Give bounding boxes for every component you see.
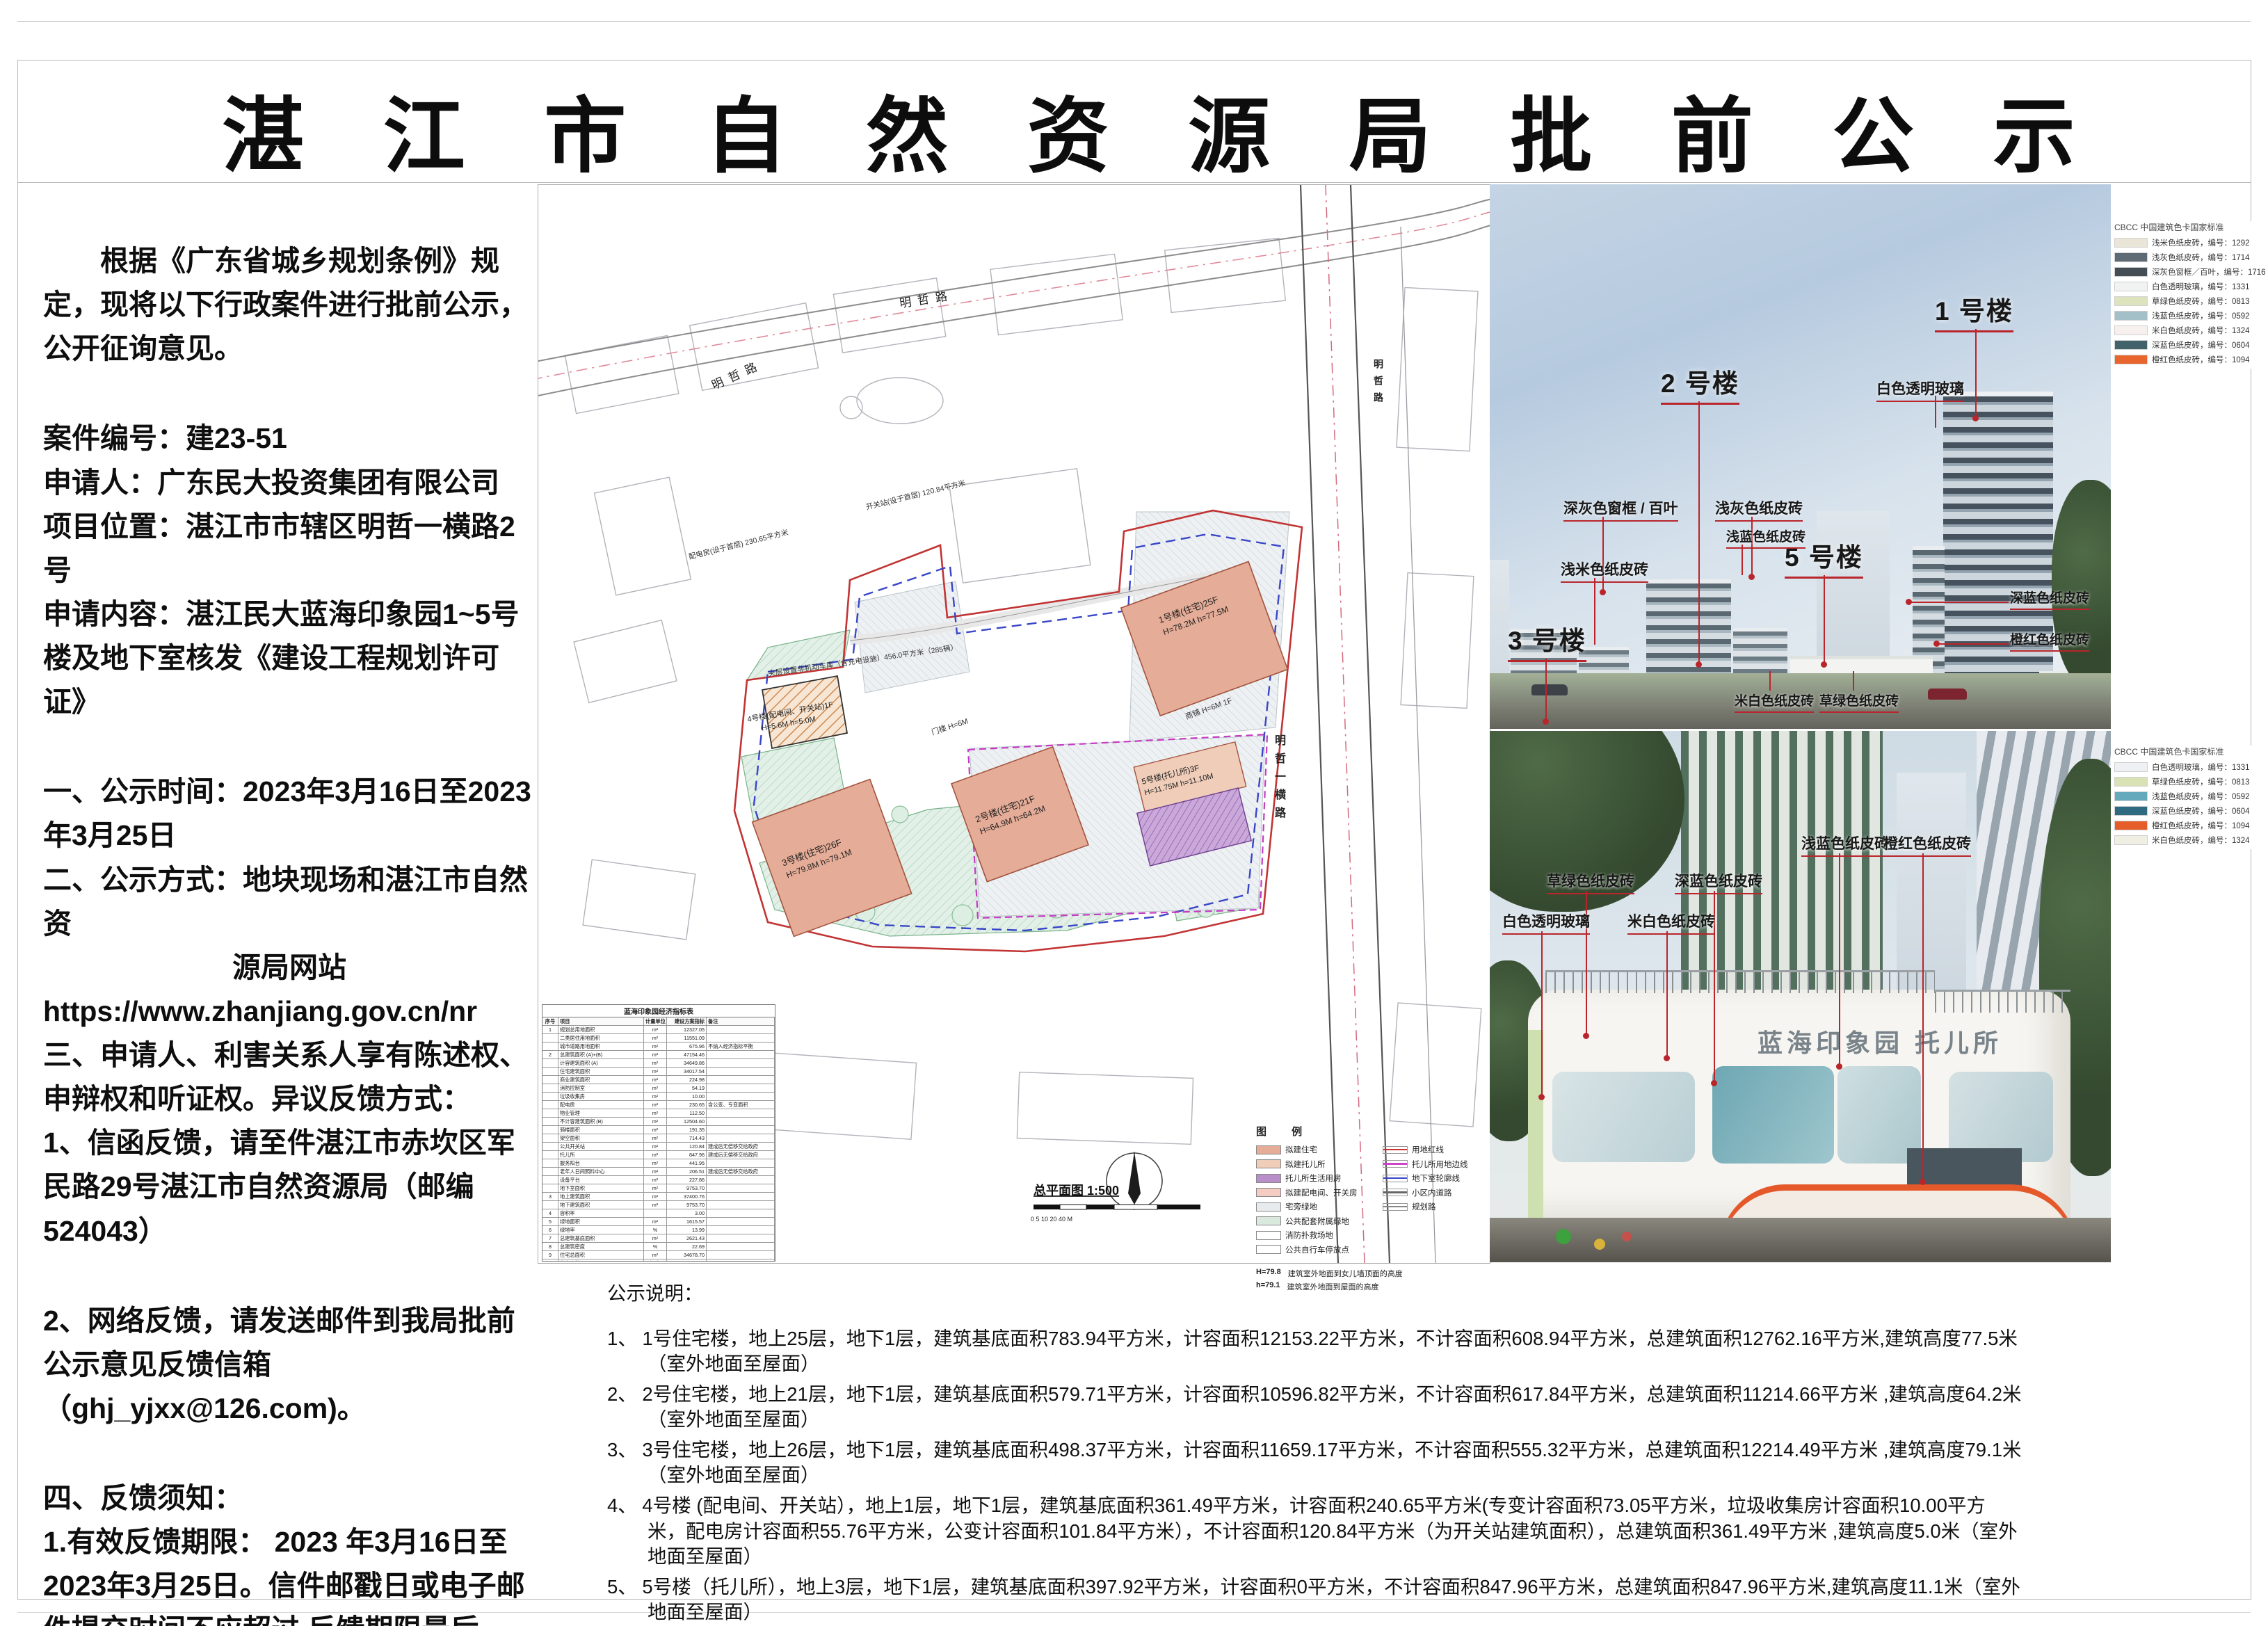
legend-swatch [1256, 1174, 1281, 1183]
legend-item: 公共自行车停放点 [1256, 1244, 1376, 1255]
economic-table-body: 1 规划总用地面积 m² 12327.05 二类居住用地面积 m² 11551.… [542, 1026, 775, 1262]
annotation-green-brick: 草绿色纸皮砖 [1819, 691, 1899, 713]
legend-item: 宅旁绿地 [1256, 1201, 1376, 1212]
notice-item: 3、 3号住宅楼，地上26层，地下1层，建筑基底面积498.37平方米，计容面积… [607, 1438, 2022, 1488]
table-row: 二类居住用地面积 m² 11551.09 [542, 1034, 775, 1043]
leader-dot [1821, 661, 1827, 668]
table-row: 配电房 m² 230.65 含公变、专变面积 [542, 1101, 775, 1109]
leader-dot [1920, 1179, 1926, 1185]
leader-line [1769, 671, 1771, 691]
mail-feedback: 1、信函反馈，请至件湛江市赤坎区军民路29号湛江市自然资源局（邮编524043） [43, 1121, 536, 1253]
power-note: 配电房(设于首层) 230.65平方米 [688, 528, 789, 561]
road-label-mingzhe-right: 明哲路 [1372, 359, 1385, 442]
legend-line-swatch [1383, 1175, 1408, 1182]
color-swatch [2114, 835, 2148, 845]
notice-item: 5、 5号楼（托儿所），地上3层，地下1层，建筑基底面积397.92平方米，计容… [607, 1575, 2022, 1625]
color-swatch [2114, 340, 2148, 350]
leader-line [1824, 575, 1825, 664]
roof-railing [1935, 990, 2070, 1013]
section-2-method-line2: 源局网站 [43, 946, 536, 990]
table-row: 住宅建筑面积 m² 34017.54 [542, 1068, 775, 1076]
notice-page: 湛 江 市 自 然 资 源 局 批 前 公 示 根据《广东省城乡规划条例》规定，… [0, 0, 2268, 1626]
annotation-white-glass: 白色透明玻璃 [1876, 378, 1964, 402]
color-swatch [2114, 762, 2148, 772]
section-2-method: 二、公示方式：地块现场和湛江市自然资 [43, 858, 536, 946]
tree [2052, 480, 2111, 689]
color-swatch [2114, 777, 2148, 787]
leader-line [1594, 578, 1595, 645]
ground [1490, 1218, 2111, 1262]
leader-line [1975, 329, 1977, 418]
section-4-notes: 四、反馈须知： [43, 1476, 536, 1520]
cbcc-legend-item: 米白色纸皮砖，编号：1324 [2114, 325, 2262, 336]
leader-dot [1538, 1094, 1545, 1100]
cbcc-legend-item: 浅灰色纸皮砖，编号：1714 [2114, 252, 2262, 263]
table-row: 5 绿地面积 m² 1615.57 [542, 1218, 775, 1226]
table-row: 10 住宅套数 户(套) 276 [542, 1259, 775, 1262]
tower-3-label: 3 号楼 [1508, 620, 1586, 662]
table-row: 2 总建筑面积 (A)+(B) m² 47154.46 [542, 1051, 775, 1059]
annotation-dark-gray-frame: 深灰色窗框 / 百叶 [1563, 497, 1678, 522]
distant-tower [1817, 511, 1890, 671]
leader-dot [1933, 641, 1940, 647]
cbcc-legend-item: 米白色纸皮砖，编号：1324 [2114, 835, 2262, 846]
tower-1-label: 1 号楼 [1935, 290, 2013, 332]
leader-dot [1748, 574, 1755, 580]
legend-swatch [1256, 1145, 1281, 1154]
table-row: 消防控制室 m² 54.19 [542, 1084, 775, 1093]
towers-rendering: 1 号楼 2 号楼 3 号楼 5 号楼 白色透明玻璃 深灰色窗框 / 百叶 浅灰… [1490, 184, 2111, 729]
cbcc-legend-item: 草绿色纸皮砖，编号：0813 [2114, 776, 2262, 787]
annotation-dark-blue-brick: 深蓝色纸皮砖 [2010, 588, 2089, 610]
table-row: 6 绿地率 % 13.99 [542, 1226, 775, 1234]
legend-item: 托儿所生活用房 [1256, 1173, 1376, 1184]
road-label-mingzhe-1: 明哲路 [709, 358, 764, 392]
case-number: 案件编号：建23-51 [43, 417, 536, 460]
road-label-yihenglu: 明哲一横路 [1270, 734, 1287, 867]
annotation-dark-blue-brick: 深蓝色纸皮砖 [1675, 870, 1762, 894]
leader-line [1698, 401, 1700, 664]
annotation-light-beige-brick: 浅米色纸皮砖 [1561, 558, 1648, 583]
color-swatch [2114, 267, 2148, 277]
plan-legend-right: 用地红线 托儿所用地边线 地下室轮廓线 [1383, 1144, 1487, 1258]
legend-line-swatch [1383, 1160, 1408, 1168]
cbcc-legend-items: 白色透明玻璃，编号：1331 草绿色纸皮砖，编号：0813 浅蓝色纸皮砖，编号：… [2114, 762, 2262, 846]
economic-table-title: 蓝海印象园经济指标表 [542, 1005, 775, 1017]
legend-item: 小区内道路 [1383, 1187, 1487, 1198]
leader-line [1938, 643, 2009, 645]
building-sign: 蓝海印象园 托儿所 [1758, 1023, 2002, 1059]
legend-swatch [1256, 1231, 1281, 1240]
leader-dot [1972, 415, 1979, 421]
annotation-white-glass: 白色透明玻璃 [1502, 910, 1590, 935]
leader-line [1541, 931, 1543, 1097]
switch-note: 开关站(设于首层) 120.84平方米 [865, 478, 967, 512]
play-ball [1594, 1239, 1605, 1250]
leader-dot [1711, 1080, 1717, 1086]
legend-item: 公共配套附属绿地 [1256, 1216, 1376, 1227]
legend-swatch [1256, 1216, 1281, 1225]
table-row: 骑楼面积 m² 191.35 [542, 1126, 775, 1134]
table-row: 老年人日间照料中心 m² 206.51 建成后无偿移交给政府 [542, 1168, 775, 1176]
section-3-rights: 三、申请人、利害关系人享有陈述权、申辩权和听证权。异议反馈方式： [43, 1033, 536, 1121]
table-row: 不计容建筑面积 (B) m² 12504.60 [542, 1118, 775, 1126]
color-swatch [2114, 296, 2148, 306]
legend-swatch [1256, 1202, 1281, 1212]
table-row: 商业建筑面积 m² 224.98 [542, 1076, 775, 1084]
leader-line [1910, 602, 2009, 603]
legend-line-swatch [1383, 1189, 1408, 1196]
distant-tower [1897, 773, 1966, 1002]
leader-dot [1600, 589, 1606, 595]
section-1-time: 一、公示时间：2023年3月16日至2023年3月25日 [43, 770, 536, 858]
notice-heading: 公示说明： [607, 1281, 2022, 1307]
scale-ticks: 0 5 10 20 40 M [1031, 1216, 1072, 1223]
notice-item: 4、 4号楼 (配电间、开关站），地上1层，地下1层，建筑基底面积361.49平… [607, 1493, 2022, 1570]
color-swatch [2114, 821, 2148, 830]
economic-table-header: 序号 项目 计量单位 建设方案指标 备注 [542, 1017, 775, 1026]
cbcc-legend-items: 浅米色纸皮砖，编号：1292 浅灰色纸皮砖，编号：1714 深灰色窗框／百叶，编… [2114, 237, 2262, 365]
annotation-off-white-brick: 米白色纸皮砖 [1627, 910, 1715, 935]
color-swatch [2114, 238, 2148, 248]
cbcc-legend-item: 浅蓝色纸皮砖，编号：0592 [2114, 310, 2262, 321]
leader-dot [1696, 661, 1702, 668]
table-row: 9 住宅总面积 m² 34678.70 [542, 1251, 775, 1259]
annotation-green-brick: 草绿色纸皮砖 [1547, 870, 1634, 894]
color-swatch [2114, 282, 2148, 291]
intro-paragraph: 根据《广东省城乡规划条例》规定，现将以下行政案件进行批前公示，公开征询意见。 [43, 239, 536, 371]
legend-swatch [1256, 1159, 1281, 1168]
table-row: 架空面积 m² 714.43 [542, 1134, 775, 1143]
car [1531, 684, 1568, 695]
applicant: 申请人：广东民大投资集团有限公司 [43, 461, 536, 505]
leader-line [1922, 853, 1924, 1182]
notice-item: 1、 1号住宅楼，地上25层，地下1层，建筑基底面积783.94平方米，计容面积… [607, 1326, 2022, 1377]
leader-line [1839, 853, 1840, 1066]
table-row: 设备平台 m² 227.86 [542, 1176, 775, 1184]
color-swatch [2114, 252, 2148, 262]
legend-item: 托儿所用地边线 [1383, 1159, 1487, 1170]
road-label-mingzhe-2: 明哲路 [899, 289, 954, 310]
leader-line [1935, 396, 1936, 428]
legend-item: 拟建配电间、开关房 [1256, 1187, 1376, 1198]
cbcc-legend-top: CBCC 中国建筑色卡国家标准 浅米色纸皮砖，编号：1292 浅灰色纸皮砖，编号… [2114, 221, 2262, 369]
road-mingzhe [538, 198, 1490, 397]
play-ball [1556, 1229, 1571, 1244]
plan-title: 总平面图 1:500 [1034, 1183, 1119, 1198]
annotation-light-blue-brick: 浅蓝色纸皮砖 [1726, 526, 1805, 549]
color-swatch [2114, 311, 2148, 321]
cbcc-legend-title: CBCC 中国建筑色卡国家标准 [2114, 746, 2262, 757]
table-row: 托儿所 m² 847.96 建成后无偿移交给政府 [542, 1151, 775, 1159]
cbcc-legend-item: 深灰色窗框／百叶，编号：1716 [2114, 266, 2262, 277]
table-row: 8 总建筑密度 % 22.69 [542, 1243, 775, 1251]
play-ball [1622, 1232, 1632, 1241]
legend-item: 规划路 [1383, 1201, 1487, 1212]
table-row: 3 地上建筑面积 m² 37400.76 [542, 1193, 775, 1201]
leader-line [1853, 671, 1854, 691]
cbcc-legend-item: 草绿色纸皮砖，编号：0813 [2114, 296, 2262, 307]
legend-swatch [1256, 1245, 1281, 1254]
leader-line [1742, 545, 1743, 575]
leader-dot [1906, 599, 1912, 605]
table-row: 地下室面积 m² 9753.70 [542, 1184, 775, 1193]
leader-dot [1836, 1063, 1842, 1070]
cbcc-legend-item: 浅蓝色纸皮砖，编号：0592 [2114, 791, 2262, 802]
plan-legend-title: 图 例 [1256, 1124, 1487, 1138]
site-plan-panel: 1号楼(住宅)25F H=78.2M h=77.5M 2号楼(住宅)21F H=… [538, 184, 1490, 1264]
table-row: 4 容积率 3.00 [542, 1209, 775, 1218]
leader-line [1666, 931, 1668, 1058]
nursery-rendering: 蓝海印象园 托儿所 浅蓝色纸皮砖 橙红色纸皮砖 草绿色纸皮砖 深蓝色纸皮砖 白色… [1490, 731, 2111, 1262]
table-row: 计容建筑面积 (A) m² 34649.86 [542, 1059, 775, 1068]
cbcc-legend-item: 深蓝色纸皮砖，编号：0604 [2114, 805, 2262, 816]
feedback-deadline: 1.有效反馈期限： 2023 年3月16日至2023年3月25日。信件邮戳日或电… [43, 1520, 536, 1626]
leader-dot [1543, 718, 1549, 725]
net-feedback: 2、网络反馈，请发送邮件到我局批前公示意见反馈信箱（ghj_yjxx@126.c… [43, 1299, 536, 1431]
legend-item: 地下室轮廓线 [1383, 1173, 1487, 1184]
website-link[interactable]: https://www.zhanjiang.gov.cn/nr [43, 990, 536, 1033]
table-row: 服务阳台 m² 441.95 [542, 1159, 775, 1168]
color-swatch [2114, 325, 2148, 335]
notice-explanation: 公示说明： 1、 1号住宅楼，地上25层，地下1层，建筑基底面积783.94平方… [607, 1281, 2022, 1626]
top-rule [17, 21, 2251, 22]
table-row: 7 总建筑基底面积 m² 2621.43 [542, 1234, 775, 1243]
table-row: 城市道路用地面积 m² 675.96 不纳入经济指标平衡 [542, 1043, 775, 1051]
annotation-orange-brick: 橙红色纸皮砖 [2010, 629, 2089, 652]
legend-item: 拟建托儿所 [1256, 1159, 1376, 1170]
car [1928, 689, 1967, 700]
legend-item: 用地红线 [1383, 1144, 1487, 1155]
legend-item: 拟建住宅 [1256, 1144, 1376, 1155]
color-swatch [2114, 355, 2148, 364]
request-content: 申请内容：湛江民大蓝海印象园1~5号楼及地下室核发《建设工程规划许可证》 [43, 593, 536, 724]
cbcc-legend-item: 橙红色纸皮砖，编号：1094 [2114, 354, 2262, 365]
color-swatch [2114, 806, 2148, 816]
plan-legend-left: 拟建住宅 拟建托儿所 托儿所生活用房 [1256, 1144, 1376, 1258]
economic-indicator-table: 蓝海印象园经济指标表 序号 项目 计量单位 建设方案指标 备注 1 规划总用地面… [542, 1004, 775, 1262]
table-row: 物业管理 m² 112.50 [542, 1109, 775, 1118]
page-title: 湛 江 市 自 然 资 源 局 批 前 公 示 [0, 70, 2268, 188]
gate-label: 门楼 H=6M [930, 716, 969, 736]
roof-railing [1545, 970, 1935, 993]
road-mingzhe-yihenglu [1301, 185, 1435, 1263]
legend-line-swatch [1383, 1146, 1408, 1154]
cbcc-legend-item: 浅米色纸皮砖，编号：1292 [2114, 237, 2262, 248]
cbcc-legend-item: 深蓝色纸皮砖，编号：0604 [2114, 339, 2262, 351]
window [1552, 1072, 1695, 1162]
cbcc-legend-item: 白色透明玻璃，编号：1331 [2114, 762, 2262, 773]
table-row: 1 规划总用地面积 m² 12327.05 [542, 1026, 775, 1034]
legend-swatch [1256, 1188, 1281, 1197]
annotation-orange-brick: 橙红色纸皮砖 [1883, 832, 1971, 857]
scale-bar: 总平面图 1:500 0 5 10 20 40 M [1031, 1183, 1200, 1223]
notice-items: 1、 1号住宅楼，地上25层，地下1层，建筑基底面积783.94平方米，计容面积… [607, 1326, 2022, 1626]
north-arrow [1107, 1152, 1162, 1210]
table-row: 垃圾收集房 m² 10.00 [542, 1093, 775, 1101]
leader-dot [1664, 1055, 1670, 1061]
annotation-light-gray-brick: 浅灰色纸皮砖 [1715, 497, 1803, 522]
table-row: 公共开关站 m² 120.84 建成后无偿移交给政府 [542, 1143, 775, 1151]
tower-2-label: 2 号楼 [1661, 362, 1739, 405]
plan-legend: 图 例 拟建住宅 拟建托儿所 [1256, 1124, 1487, 1292]
annotation-light-blue-brick: 浅蓝色纸皮砖 [1801, 832, 1889, 857]
legend-item: 消防扑救场地 [1256, 1230, 1376, 1241]
notice-body-text: 根据《广东省城乡规划条例》规定，现将以下行政案件进行批前公示，公开征询意见。 案… [43, 239, 536, 1626]
cbcc-legend-title: CBCC 中国建筑色卡国家标准 [2114, 221, 2262, 233]
table-row: 地下建筑面积 m² 9753.70 [542, 1201, 775, 1209]
annotation-off-white-brick: 米白色纸皮砖 [1735, 691, 1814, 713]
cbcc-legend-item: 白色透明玻璃，编号：1331 [2114, 281, 2262, 292]
leader-dot [1583, 1033, 1589, 1039]
cbcc-legend-bottom: CBCC 中国建筑色卡国家标准 白色透明玻璃，编号：1331 草绿色纸皮砖，编号… [2114, 746, 2262, 849]
color-swatch [2114, 791, 2148, 801]
leader-line [1545, 659, 1547, 721]
project-location: 项目位置：湛江市市辖区明哲一横路2号 [43, 505, 536, 593]
notice-item: 2、 2号住宅楼，地上21层，地下1层，建筑基底面积579.71平方米，计容面积… [607, 1382, 2022, 1433]
height-note: H=79.8建筑室外地面到女儿墙顶面的高度 [1256, 1268, 1487, 1279]
cbcc-legend-item: 橙红色纸皮砖，编号：1094 [2114, 820, 2262, 831]
legend-line-swatch [1383, 1203, 1408, 1211]
window [1712, 1066, 1834, 1164]
